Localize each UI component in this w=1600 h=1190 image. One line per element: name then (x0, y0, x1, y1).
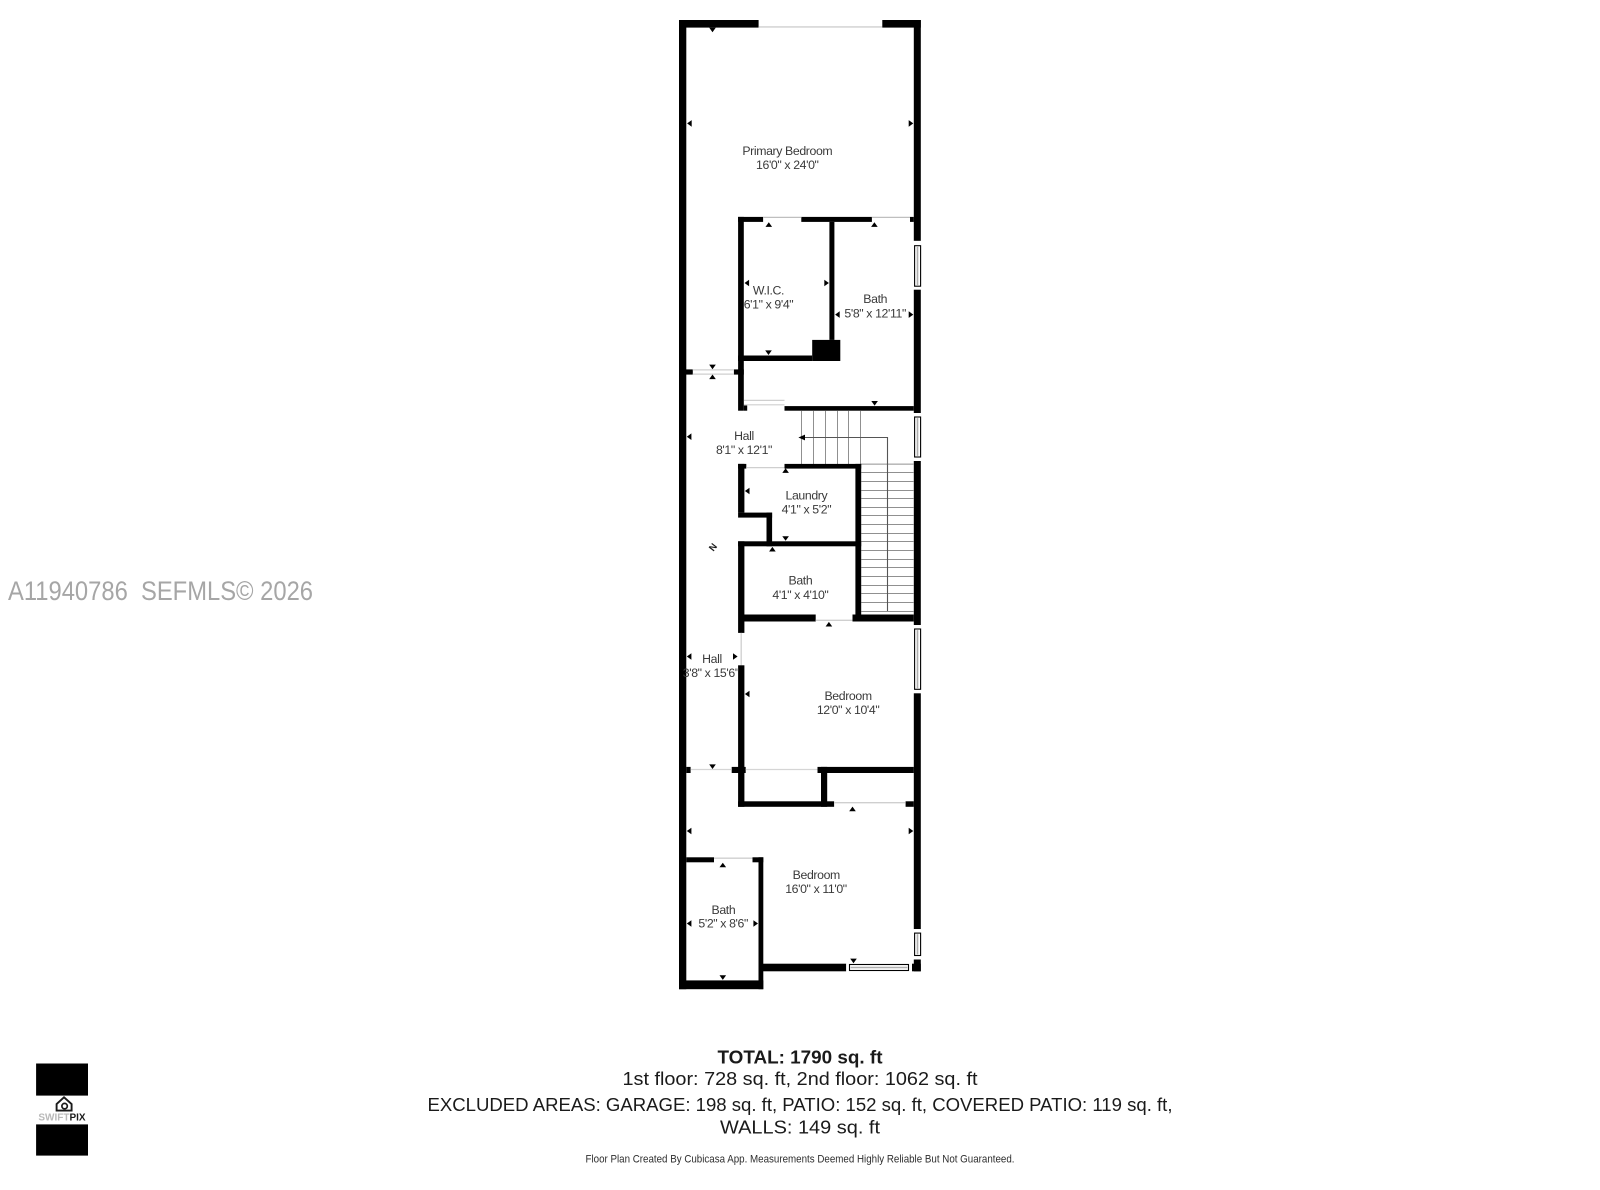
svg-text:EXCLUDED AREAS: GARAGE: 198 sq: EXCLUDED AREAS: GARAGE: 198 sq. ft, PATI… (428, 1094, 1173, 1115)
svg-text:5'8" x 12'11": 5'8" x 12'11" (844, 306, 906, 320)
svg-text:1st floor: 728 sq. ft, 2nd flo: 1st floor: 728 sq. ft, 2nd floor: 1062 s… (623, 1068, 979, 1089)
svg-text:Hall: Hall (734, 429, 754, 443)
svg-text:Bath: Bath (863, 292, 887, 306)
svg-text:WALLS: 149 sq. ft: WALLS: 149 sq. ft (720, 1116, 881, 1137)
svg-text:8'1" x 12'1": 8'1" x 12'1" (716, 443, 772, 457)
svg-text:Bath: Bath (789, 574, 813, 588)
svg-text:4'1" x 4'10": 4'1" x 4'10" (772, 588, 828, 602)
svg-text:3'8" x 15'6": 3'8" x 15'6" (683, 666, 739, 680)
svg-text:Floor Plan Created By Cubicasa: Floor Plan Created By Cubicasa App. Meas… (586, 1154, 1015, 1166)
svg-text:4'1" x 5'2": 4'1" x 5'2" (782, 503, 832, 517)
svg-text:Bedroom: Bedroom (824, 689, 871, 703)
svg-text:Laundry: Laundry (786, 488, 829, 502)
svg-text:TOTAL: 1790 sq. ft: TOTAL: 1790 sq. ft (718, 1047, 884, 1068)
svg-text:5'2" x 8'6": 5'2" x 8'6" (698, 916, 748, 930)
svg-text:16'0" x 11'0": 16'0" x 11'0" (785, 882, 847, 896)
svg-text:16'0" x 24'0": 16'0" x 24'0" (756, 158, 819, 172)
svg-text:6'1" x 9'4": 6'1" x 9'4" (744, 298, 794, 312)
svg-text:Bath: Bath (712, 903, 736, 917)
svg-text:12'0" x 10'4": 12'0" x 10'4" (817, 703, 880, 717)
svg-text:A11940786 SEFMLS© 2026: A11940786 SEFMLS© 2026 (8, 576, 313, 606)
svg-text:SWIFTPIX: SWIFTPIX (38, 1112, 86, 1123)
svg-text:Hall: Hall (702, 652, 722, 666)
svg-text:W.I.C.: W.I.C. (753, 284, 784, 298)
svg-text:Primary Bedroom: Primary Bedroom (742, 144, 832, 158)
svg-text:Bedroom: Bedroom (793, 868, 840, 882)
